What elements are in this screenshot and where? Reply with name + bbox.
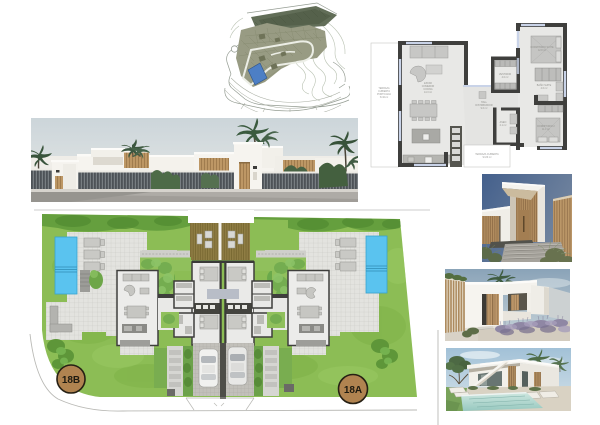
svg-text:18A: 18A	[344, 385, 362, 396]
svg-text:2.1 m²: 2.1 m²	[500, 124, 507, 127]
svg-text:4.0 m²: 4.0 m²	[502, 76, 509, 79]
svg-text:S=26 m²: S=26 m²	[482, 156, 491, 159]
svg-text:9.6 m²: 9.6 m²	[481, 107, 488, 110]
svg-text:14.3 m²: 14.3 m²	[424, 91, 432, 94]
svg-text:11.1 m²: 11.1 m²	[542, 128, 550, 131]
svg-text:18B: 18B	[62, 375, 80, 386]
svg-text:S=21m²: S=21m²	[380, 96, 389, 99]
svg-text:12.8 m²: 12.8 m²	[538, 49, 546, 52]
svg-text:4.6 m²: 4.6 m²	[541, 87, 548, 90]
